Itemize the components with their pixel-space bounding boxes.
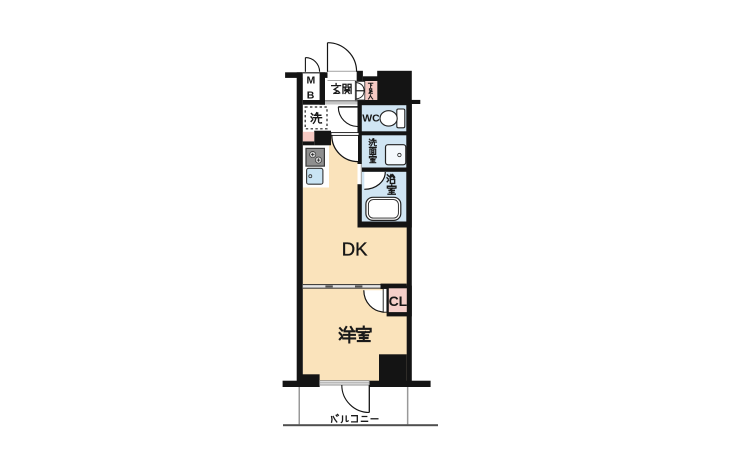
- svg-text:CL: CL: [389, 293, 408, 309]
- svg-text:DK: DK: [342, 238, 368, 259]
- svg-text:M: M: [307, 75, 316, 87]
- svg-text:B: B: [307, 89, 315, 101]
- svg-text:WC: WC: [362, 112, 380, 124]
